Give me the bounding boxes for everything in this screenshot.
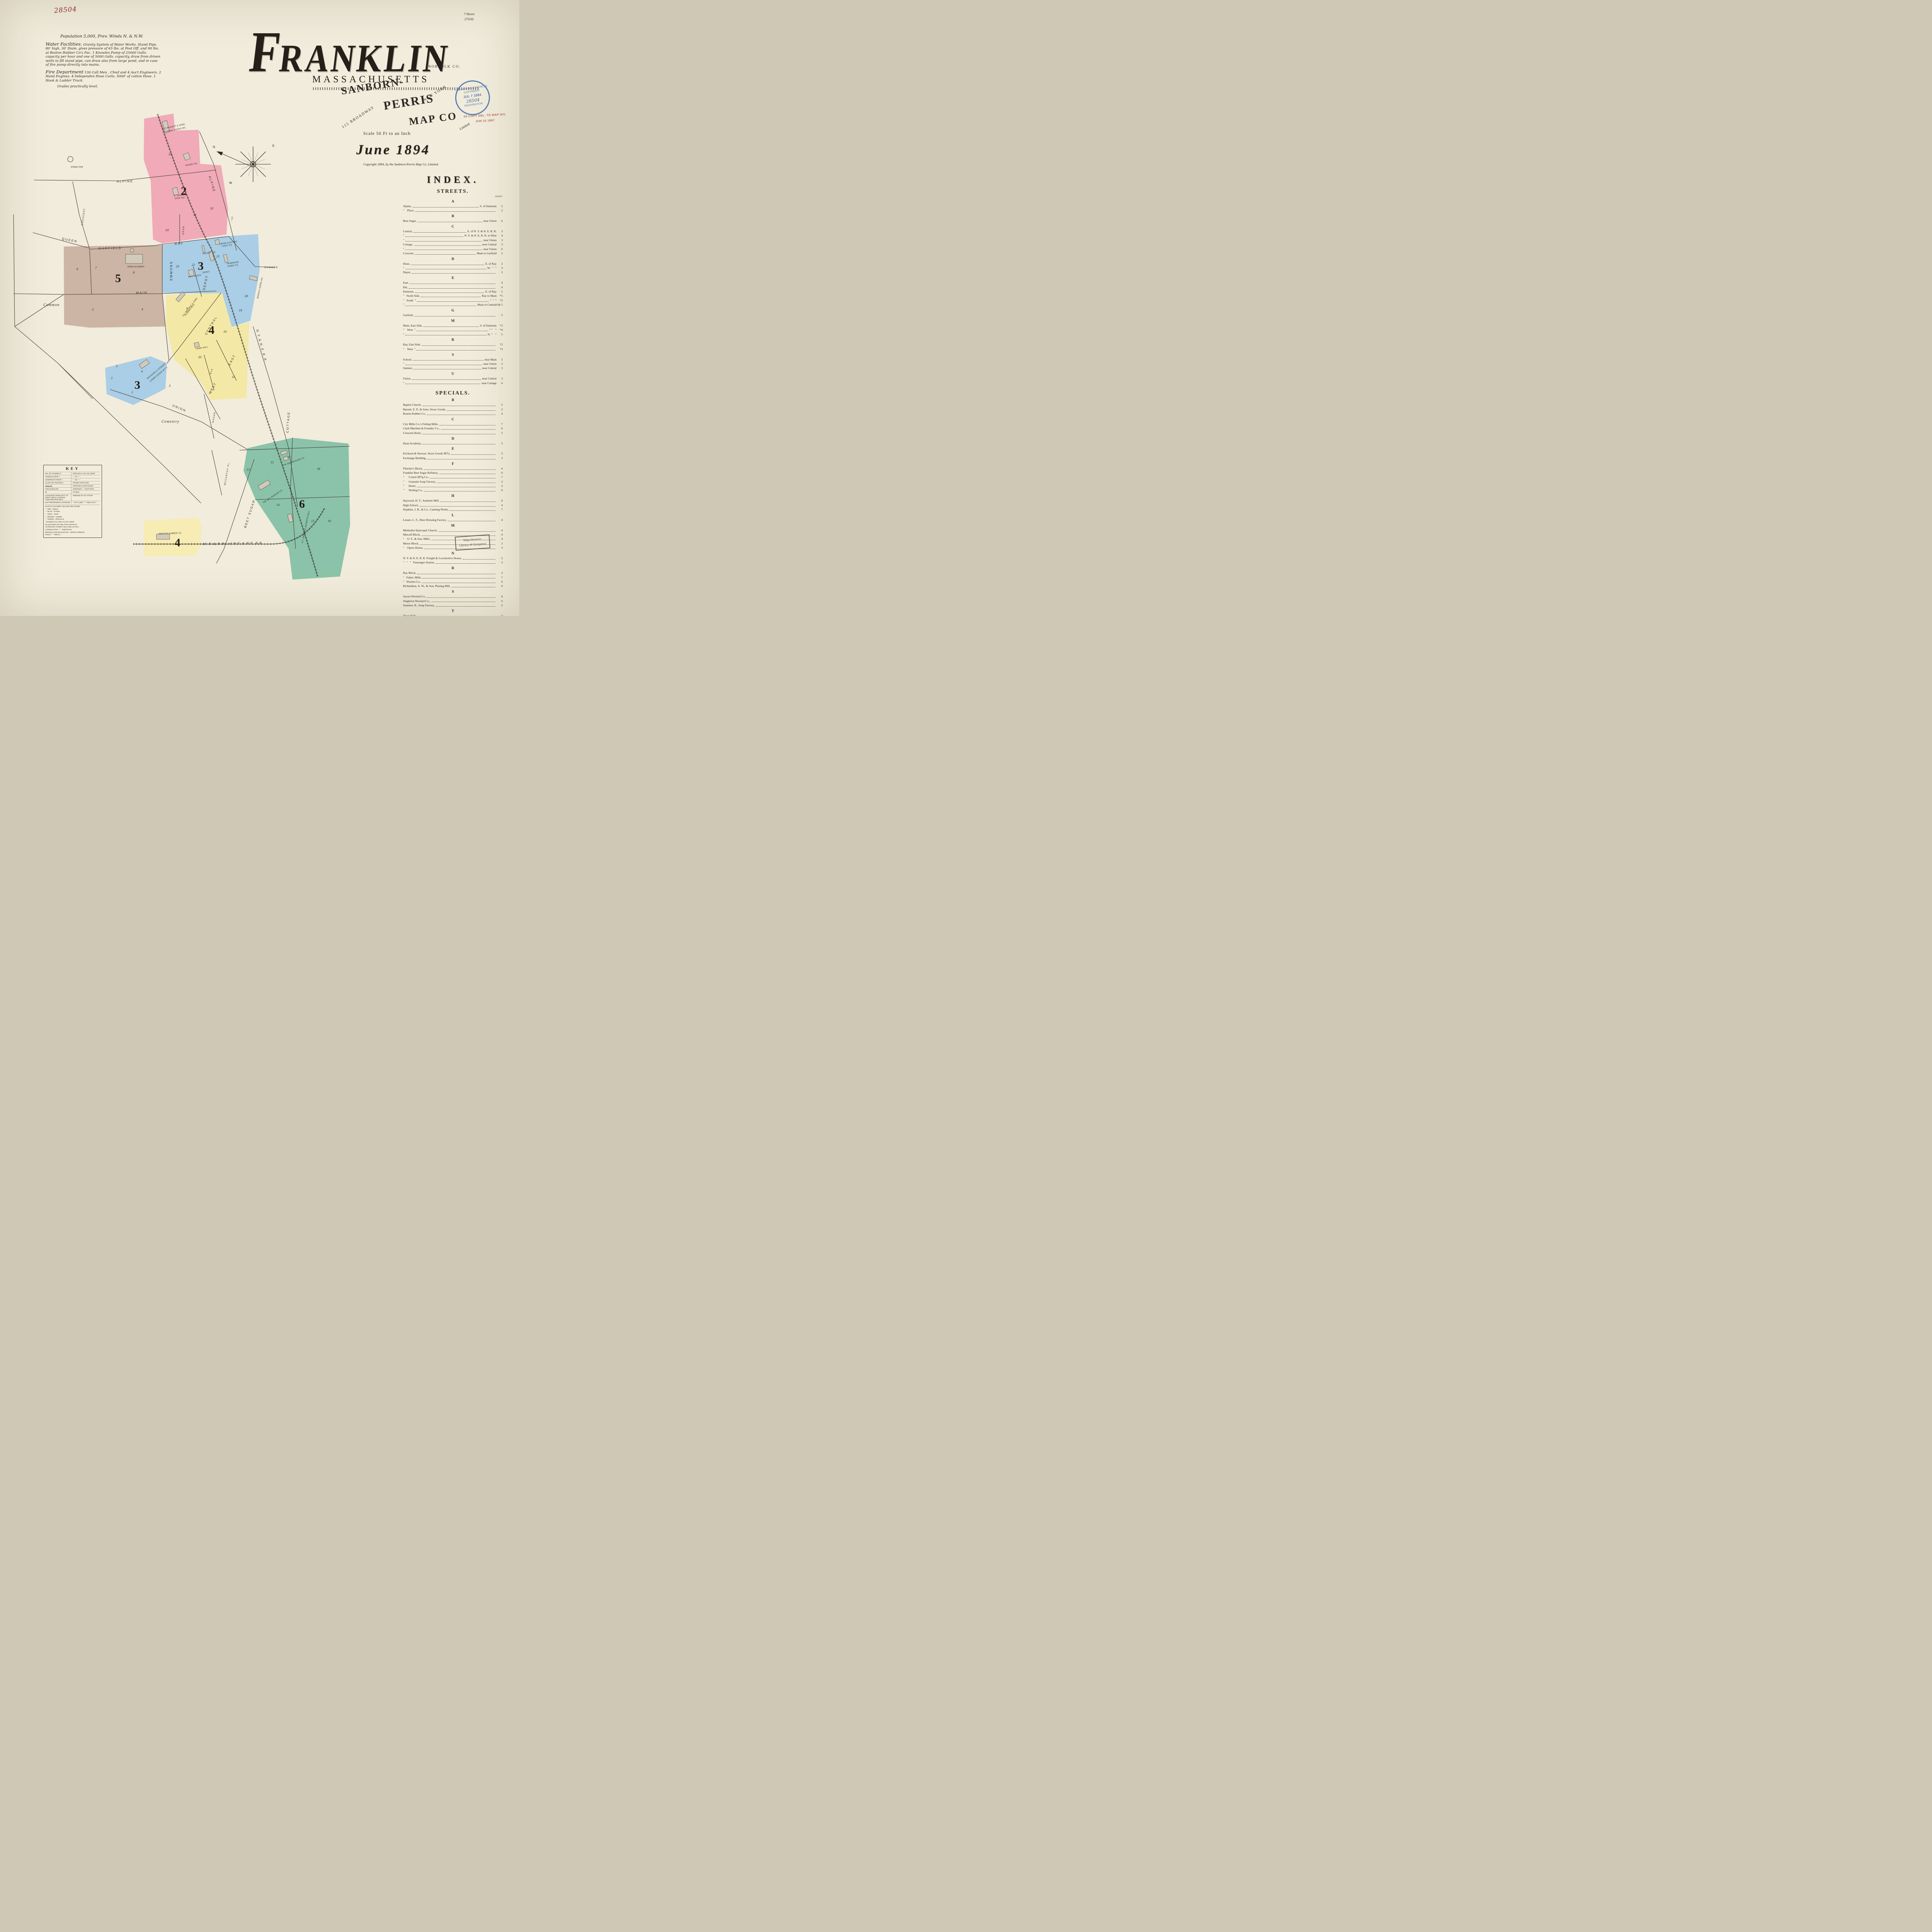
dotted-leader bbox=[415, 293, 484, 293]
key-note-line: " " BLUE " STONE bbox=[45, 510, 100, 513]
index-entry-name: Exchange Building, bbox=[403, 456, 426, 460]
dotted-leader bbox=[415, 254, 475, 255]
street-line bbox=[14, 214, 15, 327]
index-entry: " Netting Co., 6 bbox=[403, 488, 503, 492]
block-number: 24 bbox=[165, 228, 169, 232]
street-line bbox=[212, 450, 222, 495]
building-label: TROBRIDGE bbox=[226, 261, 239, 265]
key-row: ▬▬▬▬ OPENING & IRON DOOR bbox=[45, 484, 100, 487]
street-line bbox=[15, 327, 93, 399]
index-entry-sheet: 6 bbox=[497, 427, 503, 430]
index-entry-sheet: 7 bbox=[497, 422, 503, 426]
dotted-leader bbox=[418, 222, 482, 222]
district-number: 3 bbox=[198, 260, 204, 273]
index-letter-heading: S bbox=[403, 590, 503, 594]
index-entry-name: Morse Block, bbox=[403, 542, 419, 546]
index-entry-name: Dean, bbox=[403, 262, 410, 266]
dotted-leader bbox=[432, 602, 495, 602]
index-entry-name: " bbox=[403, 381, 404, 385]
dotted-leader bbox=[410, 284, 495, 284]
index-entry-name: School, bbox=[403, 358, 412, 362]
index-entry-sheet: 3 bbox=[497, 243, 503, 247]
dotted-leader bbox=[436, 606, 495, 607]
index-entry-location: near Central bbox=[482, 243, 497, 247]
index-entry-name: Crescent, bbox=[403, 252, 414, 255]
building-label: ROUND HO. bbox=[185, 162, 198, 167]
index-letter-heading: E bbox=[403, 447, 503, 451]
grades-line: Grades practically level. bbox=[57, 85, 162, 88]
street-label: ALPINE bbox=[117, 180, 134, 184]
index-entry: Hayward, H. T., Satinette Mill, 6 bbox=[403, 499, 503, 503]
key-symbol-label: SHINGLE ROOF × bbox=[45, 475, 71, 478]
building-footprint bbox=[172, 187, 179, 195]
street-label: COTTAGE bbox=[286, 411, 291, 433]
dotted-leader bbox=[427, 459, 495, 459]
dotted-leader bbox=[421, 297, 481, 297]
index-entry-name: Ray Block, bbox=[403, 571, 416, 575]
street-label: MAIN bbox=[136, 291, 148, 294]
street-label: BEET SUGAR bbox=[243, 499, 256, 528]
index-entry: East, 4 bbox=[403, 281, 503, 285]
key-symbol-label: COMPOST'N ROOF • bbox=[45, 478, 71, 481]
index-entry-sheet: 6 bbox=[497, 247, 503, 251]
district-number: 4 bbox=[209, 324, 214, 337]
key-row: STEAM BOILER WINDOWS " " SHUTTERS bbox=[45, 487, 100, 490]
building-label: E.P. BASSETT & SONS bbox=[162, 123, 185, 130]
dotted-leader bbox=[451, 454, 495, 455]
dotted-leader bbox=[415, 316, 495, 316]
building-footprint bbox=[249, 276, 258, 281]
street-label: ELK bbox=[210, 368, 214, 375]
index-entry-name: " West " bbox=[403, 347, 415, 351]
index-entry-location: Ray to Main bbox=[482, 294, 497, 298]
key-row: NO. OF STORIES 3 FIRE WALL 6 IN. AB. ROO… bbox=[45, 472, 100, 475]
key-symbol-label: STEAM BOILER bbox=[45, 488, 71, 490]
key-symbol-label: ⊠ bbox=[45, 491, 71, 494]
dotted-leader bbox=[417, 301, 489, 302]
street-line bbox=[73, 182, 90, 249]
index-entry-name: " Woolen Co., bbox=[403, 580, 421, 584]
index-letter-heading: M bbox=[403, 319, 503, 323]
building-label: LIGHT CO. bbox=[222, 244, 233, 248]
streets-index-list: A Alpine, S. of Emmons 2 " Place, 2 B Be… bbox=[403, 200, 503, 385]
index-entry-name: Garfield, bbox=[403, 313, 413, 317]
place-label: Common bbox=[43, 303, 60, 307]
dotted-leader bbox=[414, 369, 481, 369]
index-letter-heading: E bbox=[403, 276, 503, 280]
index-entry: Erickson & Stewart, Straw Goods M'f'y, 3 bbox=[403, 452, 503, 456]
dotted-leader bbox=[409, 288, 495, 289]
index-entry-sheet: 2 bbox=[497, 204, 503, 208]
key-symbol-label: COUNTING FROM LEFT TO RIGHT WHILE LOOKIN… bbox=[45, 494, 71, 501]
district-number: 6 bbox=[299, 498, 305, 511]
dotted-leader bbox=[422, 345, 495, 346]
street-line bbox=[110, 389, 247, 449]
index-entry-name: Clark Machine & Foundry Co., bbox=[403, 427, 440, 430]
index-entry-sheet: 4 bbox=[497, 412, 503, 416]
index-entry: Fletcher's Block, 4 bbox=[403, 467, 503, 471]
index-entry-location: near Main bbox=[485, 358, 497, 362]
county-label: NORFOLK CO. bbox=[428, 65, 461, 69]
building-footprint bbox=[194, 342, 200, 348]
index-entry-sheet: 4 bbox=[497, 281, 503, 285]
dotted-leader bbox=[436, 563, 495, 564]
block-number: 31 bbox=[193, 213, 197, 217]
index-entry: " near Union 6 bbox=[403, 247, 503, 251]
building-footprint bbox=[281, 450, 287, 455]
index-letter-heading: R bbox=[403, 566, 503, 570]
north-arrow-head bbox=[216, 151, 223, 156]
index-entry-sheet: 7 bbox=[497, 508, 503, 512]
place-label: Cemetery bbox=[162, 420, 179, 424]
street-line bbox=[34, 170, 216, 181]
index-entry-sheet: 3 bbox=[497, 230, 503, 233]
street-label: DEPOT bbox=[202, 275, 209, 291]
index-entry-sheet: 5 bbox=[497, 442, 503, 446]
dotted-leader bbox=[423, 327, 479, 327]
index-entry-name: Lesure, L. F., Shoe Dressing Factory, bbox=[403, 518, 447, 522]
index-entry-name: " Netting Co., bbox=[403, 488, 423, 492]
index-entry-name: Depot, bbox=[403, 270, 411, 274]
dotted-leader bbox=[441, 429, 495, 430]
street-line bbox=[185, 359, 220, 419]
publisher-mapco: MAP CO bbox=[408, 110, 458, 128]
key-description: OPENING & IRON DOOR bbox=[71, 485, 100, 487]
district-number: 5 bbox=[115, 272, 121, 285]
block-number: 1 bbox=[131, 390, 133, 394]
dotted-leader bbox=[437, 483, 495, 483]
index-entry-sheet: 3 bbox=[497, 366, 503, 370]
key-row: SLATE OR TIN ROOF ○ FRAME PARTITION bbox=[45, 481, 100, 484]
index-entry-name: Singleton Worsted Co., bbox=[403, 599, 430, 603]
building-label: DEPOT. bbox=[202, 271, 210, 274]
key-symbol-label: ▬▬▬▬ bbox=[45, 485, 71, 487]
building-footprint bbox=[287, 514, 293, 522]
index-entry-name: " West " bbox=[403, 328, 415, 332]
index-entry-name: " bbox=[403, 234, 404, 238]
index-entry: Main, East Side, S. of Emmons *3 bbox=[403, 324, 503, 328]
index-entry-sheet: 6 bbox=[497, 219, 503, 223]
specials-index-list: B Baptist Church, 5 Bassett, E. P., & So… bbox=[403, 398, 503, 616]
dotted-leader bbox=[420, 506, 495, 507]
street-label: GARFIELD bbox=[99, 246, 122, 250]
district-5-adobe bbox=[64, 245, 165, 328]
index-entry: Beet Sugar, near Union 6 bbox=[403, 219, 503, 223]
street-line bbox=[14, 294, 64, 294]
building-label: ERICKSON & STEWART bbox=[146, 363, 166, 380]
index-entry-location: near Union bbox=[483, 219, 497, 223]
block-number: 21 bbox=[216, 254, 220, 258]
index-entry-name: Cottage, bbox=[403, 243, 413, 247]
index-entry: " O. F., & Son, Mills, 4 bbox=[403, 537, 503, 541]
street-line bbox=[204, 355, 214, 390]
railroad-line bbox=[158, 114, 318, 577]
block-number: 18 bbox=[317, 467, 320, 471]
building-footprint bbox=[156, 534, 170, 539]
dotted-leader bbox=[405, 250, 482, 250]
index-entry-location: Main to Central bbox=[478, 303, 496, 307]
index-entry-name: Hopkins, J. B., & Co., Canning Works, bbox=[403, 508, 449, 512]
dotted-leader bbox=[439, 425, 495, 425]
index-entry-sheet: *5 bbox=[497, 294, 503, 298]
index-entry-name: " Cotton M'f'g Co., bbox=[403, 475, 429, 479]
index-entry-name: Elk, bbox=[403, 286, 408, 289]
street-label: SUMMER bbox=[264, 267, 278, 269]
index-entry-location: Main to Garfield bbox=[477, 252, 497, 255]
street-label: CRESCENT bbox=[81, 208, 86, 225]
index-entry-name: Fletcher's Block, bbox=[403, 467, 423, 471]
building-footprint bbox=[258, 480, 270, 490]
building-label: O.F. METCALF & SONS bbox=[182, 297, 198, 317]
dotted-leader bbox=[417, 350, 495, 350]
index-entry-name: Hayward, H. T., Satinette Mill, bbox=[403, 499, 439, 503]
dotted-leader bbox=[424, 491, 495, 492]
index-entry-location: W. " " bbox=[487, 266, 497, 270]
building-label: FREIGHT HO. bbox=[202, 251, 216, 255]
index-entry: " North Side, Ray to Main *5 bbox=[403, 294, 503, 298]
block-number: 15 bbox=[311, 519, 315, 523]
fire-department-paragraph: Fire Department 130 Call Men . Chief and… bbox=[46, 69, 162, 83]
street-label: NASON bbox=[212, 412, 216, 423]
index-entry-sheet: 3 bbox=[497, 542, 503, 546]
building-footprint bbox=[126, 254, 143, 264]
index-entry: Alpine, S. of Emmons 2 bbox=[403, 204, 503, 208]
building-label: THE BAY WOOLEN CO. bbox=[282, 457, 305, 467]
publisher-perris: PERRIS bbox=[383, 91, 435, 113]
index-entry: Dean Academy, 5 bbox=[403, 442, 503, 446]
index-entry-sheet: 4 bbox=[497, 234, 503, 238]
index-entry-name: Ray, East Side, bbox=[403, 343, 421, 347]
index-entry-sheet: 7 bbox=[497, 475, 503, 479]
dotted-leader bbox=[420, 544, 495, 545]
street-line bbox=[90, 246, 154, 249]
dotted-leader bbox=[448, 521, 495, 521]
street-line bbox=[240, 446, 350, 450]
street-label: ALPINE bbox=[208, 175, 216, 192]
dotted-leader bbox=[423, 578, 495, 578]
copyright-line: Copyright 1894, by the Sanborn-Perris Ma… bbox=[363, 162, 439, 166]
index-letter-heading: C bbox=[403, 225, 503, 229]
index-entry: Elk, 4 bbox=[403, 286, 503, 289]
index-entry-name: Boston Rubber Co., bbox=[403, 412, 426, 416]
index-entry-sheet: 6 bbox=[497, 471, 503, 475]
street-label: CENTRAL bbox=[204, 316, 218, 336]
dotted-leader bbox=[423, 444, 495, 444]
index-entry: Cottage, near Central 3 bbox=[403, 243, 503, 247]
town-notes: Population 5,000, Prev. Winds N. & N.W. … bbox=[46, 34, 162, 89]
index-entry-sheet: 4 bbox=[497, 518, 503, 522]
building-label: UNION ELECTRIC bbox=[219, 241, 238, 245]
block-number: 4 bbox=[141, 307, 143, 311]
district-number: 4 bbox=[175, 536, 180, 549]
fire-department-heading: Fire Department bbox=[46, 69, 83, 75]
key-note-line: " " BROWN " ADOBE bbox=[45, 516, 100, 519]
index-entry: " Granular Soap Factory, 2 bbox=[403, 480, 503, 484]
map-key-legend: KEY NO. OF STORIES 3 FIRE WALL 6 IN. AB.… bbox=[43, 465, 102, 538]
compass-west-label: W bbox=[229, 181, 233, 185]
index-column: INDEX. STREETS. SHEET A Alpine, S. of Em… bbox=[403, 175, 503, 616]
index-entry-name: " " " Passenger Station, bbox=[403, 561, 435, 565]
key-note-line: ALTERNATE STREET NO'S ARE ACTUAL bbox=[45, 526, 100, 529]
block-number: 2 bbox=[111, 376, 112, 380]
index-entry: High School, 4 bbox=[403, 503, 503, 507]
index-entry: Depot, 3 bbox=[403, 270, 503, 274]
key-note-line: B'LD'GS COLORED YELLOW ARE FRAME bbox=[45, 505, 100, 508]
index-entry-name: Sumner, bbox=[403, 366, 413, 370]
stand-pipe-symbol bbox=[68, 156, 73, 162]
index-entry-sheet: 6 bbox=[497, 599, 503, 603]
index-entry-name: " North Side, bbox=[403, 294, 420, 298]
key-description: WINDOWS " " SHUTTERS bbox=[71, 488, 100, 490]
key-note-line: BROKEN LINE NEAR B'LD'G - WOOD CORNICE bbox=[45, 531, 100, 534]
district-3-lower-stone bbox=[105, 356, 167, 405]
block-number: 10 bbox=[223, 330, 227, 333]
index-entry-name: Union, bbox=[403, 377, 411, 381]
index-entry-name: Erickson & Stewart, Straw Goods M'f'y, bbox=[403, 452, 450, 456]
index-entry-location: near Central bbox=[482, 377, 497, 381]
index-entry-name: " bbox=[403, 333, 404, 337]
building-footprint bbox=[209, 251, 214, 261]
index-entry: Boston Rubber Co., 4 bbox=[403, 412, 503, 416]
index-entry-name: " O. F., & Son, Mills, bbox=[403, 537, 430, 541]
index-entry: Crescent, Main to Garfield 5 bbox=[403, 252, 503, 255]
block-number: 20 bbox=[245, 294, 248, 298]
street-line bbox=[255, 497, 350, 500]
index-entry: " West " *3 bbox=[403, 347, 503, 351]
index-entry-location: " " " bbox=[490, 299, 497, 303]
index-entry-name: " bbox=[403, 266, 404, 270]
dotted-leader bbox=[417, 487, 495, 487]
index-entry-sheet: 3 bbox=[497, 452, 503, 456]
street-line bbox=[216, 459, 254, 563]
district-number: 2 bbox=[181, 185, 187, 198]
index-entry-sheet: 6 bbox=[497, 488, 503, 492]
dotted-leader bbox=[424, 469, 495, 470]
railroad-line bbox=[133, 508, 325, 544]
railroad-ties bbox=[158, 114, 318, 577]
key-rows: NO. OF STORIES 3 FIRE WALL 6 IN. AB. ROO… bbox=[45, 472, 100, 504]
street-label: RAY bbox=[175, 241, 184, 246]
index-entry-name: East, bbox=[403, 281, 409, 285]
index-entry-name: N. Y. & N. E. R. R. Freight & Locomotive… bbox=[403, 556, 462, 560]
index-entry: School, near Main 5 bbox=[403, 358, 503, 362]
index-entry: " South " " " " *3 bbox=[403, 299, 503, 303]
key-description: STABLE bbox=[71, 491, 100, 494]
building-label: STAND PIPE bbox=[71, 166, 83, 168]
index-entry: Clark Machine & Foundry Co., 6 bbox=[403, 427, 503, 430]
key-note-line: " " GREEN " SPECIALS bbox=[45, 518, 100, 521]
dotted-leader bbox=[452, 587, 495, 587]
index-entry: " Main to Central 4 & 5 bbox=[403, 303, 503, 307]
building-footprint bbox=[223, 254, 228, 262]
key-note-line: " " RED " BRICK bbox=[45, 508, 100, 511]
index-entry-location: S. of Emmons bbox=[480, 324, 497, 328]
index-entry-name: " Place, bbox=[403, 209, 414, 213]
population-line: Population 5,000, Prev. Winds N. & N.W. bbox=[60, 34, 162, 39]
index-entry: Morse Block, 3 bbox=[403, 542, 503, 546]
dotted-leader bbox=[440, 502, 495, 502]
building-footprint bbox=[188, 269, 194, 276]
index-entry-location: near Central bbox=[482, 366, 497, 370]
index-entry-sheet: 3 bbox=[497, 456, 503, 460]
index-entry-location: E. of Ray bbox=[485, 290, 497, 294]
dotted-leader bbox=[427, 415, 495, 415]
index-entry-location: N. Y. & N. E. R. R. to West bbox=[464, 234, 497, 238]
index-entry-location: E. of N. Y. & N. E. R. R. bbox=[468, 230, 497, 233]
street-line bbox=[193, 267, 202, 297]
building-label: RAYS BLOCK bbox=[188, 274, 201, 279]
index-entry-name: Alpine, bbox=[403, 204, 412, 208]
scale-note: Scale 50 Ft to an Inch bbox=[363, 131, 411, 136]
index-entry: Garfield, 5 bbox=[403, 313, 503, 317]
index-entry-location: near Union bbox=[483, 247, 497, 251]
street-line bbox=[167, 293, 221, 363]
index-entry: Metcalf Block, 4 bbox=[403, 533, 503, 537]
index-entry-name: High School, bbox=[403, 503, 418, 507]
index-entry-location: E. of Ray bbox=[485, 262, 497, 266]
index-letter-heading: S bbox=[403, 353, 503, 357]
index-entry: " " " Passenger Station, 3 bbox=[403, 561, 503, 565]
dotted-leader bbox=[405, 384, 480, 384]
building-label: SOAP FAC. bbox=[175, 197, 186, 200]
district-4-south-frame bbox=[144, 518, 202, 556]
building-footprint bbox=[202, 245, 205, 253]
key-description: FRAME PARTITION bbox=[71, 481, 100, 484]
index-letter-heading: F bbox=[403, 462, 503, 466]
index-entry: " N. " " 5 bbox=[403, 333, 503, 337]
railroad-label: M. F. & P. Br. of N.Y. & N.E. R.R bbox=[203, 541, 262, 546]
index-entry: Union, near Central 3 bbox=[403, 377, 503, 381]
index-entry-sheet: 4 bbox=[497, 529, 503, 532]
block-number: 17 bbox=[287, 455, 291, 459]
railroad-label: N. Y. & N. E. R. R. bbox=[255, 329, 267, 362]
index-entry-name: " Granular Soap Factory, bbox=[403, 480, 436, 484]
index-entry-sheet: 3 bbox=[497, 270, 503, 274]
district-3-stone bbox=[162, 234, 260, 327]
key-note-line: CONSECUTIVE " " " ARBITRARY bbox=[45, 529, 100, 531]
index-letter-heading: G bbox=[403, 309, 503, 313]
street-label: QUEEN bbox=[62, 237, 78, 243]
index-entry-sheet: 2 bbox=[497, 604, 503, 607]
dotted-leader bbox=[413, 360, 483, 361]
publisher-address: 115 BROADWAY bbox=[341, 105, 375, 129]
street-line bbox=[154, 244, 162, 246]
building-label: THE BAY WOOLEN CO. bbox=[263, 489, 284, 504]
index-entry-sheet: *3 bbox=[497, 324, 503, 328]
sanborn-map-sheet: 28504 7 Sheets (7324) Population 5,000, … bbox=[0, 0, 519, 616]
index-entry-sheet: 4 bbox=[497, 533, 503, 537]
railroad-ties bbox=[133, 508, 325, 544]
street-line bbox=[162, 236, 229, 244]
building-label: STRAW GOODS FAC. bbox=[165, 126, 187, 133]
index-letter-heading: B bbox=[403, 214, 503, 218]
dotted-leader bbox=[417, 331, 488, 331]
building-label: BOSTON RUBBER CO. bbox=[159, 532, 182, 535]
index-entry-name: Saxon Worsted Co., bbox=[403, 595, 426, 599]
index-letter-heading: L bbox=[403, 514, 503, 517]
street-line bbox=[199, 131, 236, 250]
building-label: MORSE'S OPERA HO. bbox=[257, 277, 264, 299]
index-entry-name: Central, bbox=[403, 230, 412, 233]
index-entry: " West " " " " *4 bbox=[403, 328, 503, 332]
index-entry: " near Cottage 6 bbox=[403, 381, 503, 385]
index-letter-heading: H bbox=[403, 494, 503, 498]
index-entry: " W. " " 3 bbox=[403, 266, 503, 270]
index-entry-name: " Hotel, bbox=[403, 484, 416, 488]
index-entry-sheet: 2 bbox=[497, 209, 503, 213]
index-letter-heading: T bbox=[403, 609, 503, 613]
index-entry-location: near Union bbox=[483, 238, 497, 242]
